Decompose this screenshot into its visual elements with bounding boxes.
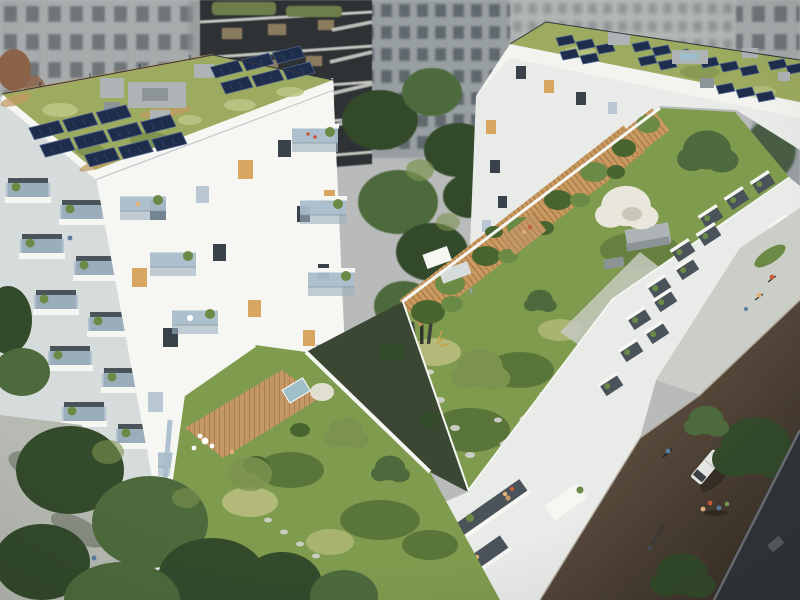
aerial-render <box>0 0 800 600</box>
scene-svg <box>0 0 800 600</box>
vignette-overlay <box>0 0 800 600</box>
